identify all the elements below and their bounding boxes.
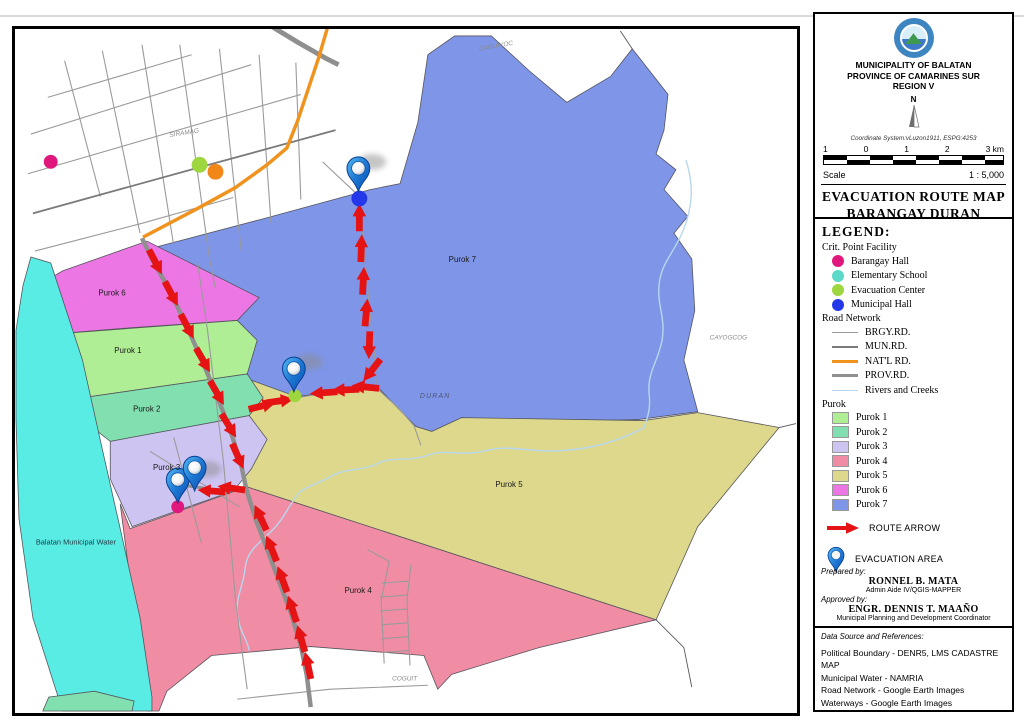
purok6-swatch xyxy=(832,484,849,496)
map-title-line1: EVACUATION ROUTE MAP xyxy=(821,189,1006,206)
evacuation-center-dot xyxy=(192,157,208,173)
credits-block: Prepared by: RONNEL B. MATA Admin Aide I… xyxy=(815,564,1012,628)
road-section-heading: Road Network xyxy=(822,313,1005,324)
approved-by-role: Municipal Planning and Development Coord… xyxy=(821,615,1006,622)
data-source-line: Waterways - Google Earth Images xyxy=(821,697,1006,709)
map-label-purok2: Purok 2 xyxy=(133,405,160,414)
legend-item-label: Purok 1 xyxy=(856,412,887,423)
legend-item-purok3: Purok 3 xyxy=(832,440,1005,453)
legend-item-label: Purok 5 xyxy=(856,470,887,481)
barangay-hall-swatch xyxy=(832,255,844,267)
legend-item-purok5: Purok 5 xyxy=(832,469,1005,482)
scale-tick: 0 xyxy=(864,144,869,154)
legend-item-label: Rivers and Creeks xyxy=(865,385,938,396)
map-label-purok6: Purok 6 xyxy=(98,289,126,298)
legend-item-label: Elementary School xyxy=(851,270,927,281)
data-source-line: Political Boundary - DENR5, LMS CADASTRE… xyxy=(821,647,1006,672)
map-label-duran: DURAN xyxy=(420,393,451,400)
approved-by-name: ENGR. DENNIS T. MAAÑO xyxy=(821,604,1006,615)
legend-heading: LEGEND: xyxy=(822,224,1005,240)
prepared-by-role: Admin Aide IV/QGIS-MAPPER xyxy=(821,587,1006,594)
purok-section-heading: Purok xyxy=(822,399,1005,410)
rivers-swatch xyxy=(832,390,858,391)
legend-item-evacuation-center: Evacuation Center xyxy=(832,284,1005,297)
purok3-swatch xyxy=(832,441,849,453)
evacuation-center-swatch xyxy=(832,284,844,296)
map-layout-panel: MUNICIPALITY OF BALATAN PROVINCE OF CAMA… xyxy=(813,12,1014,712)
data-source-line: Municipal Water - NAMRIA xyxy=(821,672,1006,684)
north-arrow-icon xyxy=(906,104,922,128)
map-title: EVACUATION ROUTE MAP BARANGAY DURAN xyxy=(821,184,1006,223)
map-frame: Purok 6 Purok 1 Purok 2 Purok 3 Purok 7 … xyxy=(12,26,800,716)
legend-item-label: Purok 3 xyxy=(856,441,887,452)
coordinate-system-note: Coordinate System:vLuzon1911, ESPG:4253 xyxy=(821,135,1006,142)
purok5-swatch xyxy=(832,470,849,482)
legend-item-label: Purok 6 xyxy=(856,485,887,496)
legend-item-label: EVACUATION AREA xyxy=(855,554,943,564)
route-arrow-icon xyxy=(826,521,860,535)
legend-item-label: Purok 7 xyxy=(856,499,887,510)
map-label-purok1: Purok 1 xyxy=(114,346,142,355)
scalebar-ticks: 1 0 1 2 3 km xyxy=(823,144,1004,154)
municipal-hall-dot xyxy=(351,191,367,207)
legend-item-barangay-hall: Barangay Hall xyxy=(832,255,1005,268)
province-name: PROVINCE OF CAMARINES SUR xyxy=(821,71,1006,82)
legend-item-purok1: Purok 1 xyxy=(832,411,1005,424)
map-label-purok7: Purok 7 xyxy=(449,255,476,264)
legend-item-label: ROUTE ARROW xyxy=(869,523,940,533)
municipal-seal-logo xyxy=(894,18,934,58)
map-label-purok3: Purok 3 xyxy=(153,463,181,472)
legend-item-elementary-school: Elementary School xyxy=(832,269,1005,282)
north-label: N xyxy=(901,95,927,104)
data-source-line: Road Network - Google Earth Images xyxy=(821,684,1006,696)
title-block: MUNICIPALITY OF BALATAN PROVINCE OF CAMA… xyxy=(815,14,1012,219)
barangay-hall-dot xyxy=(44,155,58,169)
purok1-swatch xyxy=(832,412,849,424)
evacuation-route-map-page: Purok 6 Purok 1 Purok 2 Purok 3 Purok 7 … xyxy=(0,0,1024,724)
brgy-road-swatch xyxy=(832,332,858,333)
orange-facility-dot xyxy=(208,164,224,180)
purok4-swatch xyxy=(832,455,849,467)
legend-item-label: Purok 4 xyxy=(856,456,887,467)
legend-item-route-arrow: ROUTE ARROW xyxy=(826,521,1005,535)
municipality-name: MUNICIPALITY OF BALATAN xyxy=(821,60,1006,71)
purok2-swatch xyxy=(832,426,849,438)
legend-item-purok6: Purok 6 xyxy=(832,484,1005,497)
map-label-coguit: COGUIT xyxy=(392,675,418,682)
prepared-by-name: RONNEL B. MATA xyxy=(821,576,1006,587)
legend-item-label: PROV.RD. xyxy=(865,370,909,381)
legend-item-mun-road: MUN.RD. xyxy=(832,340,1005,353)
legend-item-label: Purok 2 xyxy=(856,427,887,438)
legend-item-label: Barangay Hall xyxy=(851,256,909,267)
approved-by-label: Approved by: xyxy=(821,595,1006,604)
map-canvas: Purok 6 Purok 1 Purok 2 Purok 3 Purok 7 … xyxy=(15,29,797,713)
legend-item-label: MUN.RD. xyxy=(865,341,907,352)
legend-item-label: Evacuation Center xyxy=(851,285,925,296)
legend-item-prov-road: PROV.RD. xyxy=(832,369,1005,382)
legend-block: LEGEND: Crit. Point Facility Barangay Ha… xyxy=(815,219,1012,564)
duran-evac-center-dot xyxy=(288,389,301,402)
facility-section-heading: Crit. Point Facility xyxy=(822,242,1005,253)
data-source-block: Data Source and References: Political Bo… xyxy=(815,628,1012,713)
elementary-school-swatch xyxy=(832,270,844,282)
legend-item-municipal-hall: Municipal Hall xyxy=(832,298,1005,311)
legend-item-label: NAT'L RD. xyxy=(865,356,911,367)
mun-road-swatch xyxy=(832,346,858,348)
purok7-swatch xyxy=(832,499,849,511)
map-label-municipal-water: Balatan Municipal Water xyxy=(36,537,117,546)
natl-road-swatch xyxy=(832,360,858,363)
north-arrow: N xyxy=(901,95,927,133)
prepared-by-label: Prepared by: xyxy=(821,567,1006,576)
legend-item-natl-road: NAT'L RD. xyxy=(832,355,1005,368)
data-source-heading: Data Source and References: xyxy=(821,632,1006,641)
legend-item-purok7: Purok 7 xyxy=(832,498,1005,511)
legend-item-label: BRGY.RD. xyxy=(865,327,910,338)
legend-item-purok2: Purok 2 xyxy=(832,426,1005,439)
map-label-cayogcog: CAYOGCOG xyxy=(710,334,747,341)
scale-label: Scale xyxy=(823,170,846,180)
map-label-purok5: Purok 5 xyxy=(495,480,523,489)
map-label-purok4: Purok 4 xyxy=(344,586,372,595)
scale-tick: 1 xyxy=(823,144,828,154)
legend-item-brgy-road: BRGY.RD. xyxy=(832,326,1005,339)
scale-tick: 1 xyxy=(904,144,909,154)
scale-tick: 3 km xyxy=(986,144,1004,154)
scale-ratio: 1 : 5,000 xyxy=(969,170,1004,180)
prov-road-swatch xyxy=(832,374,858,377)
legend-item-purok4: Purok 4 xyxy=(832,455,1005,468)
legend-item-rivers: Rivers and Creeks xyxy=(832,384,1005,397)
municipal-hall-swatch xyxy=(832,299,844,311)
legend-item-label: Municipal Hall xyxy=(851,299,912,310)
scalebar xyxy=(823,155,1004,165)
scale-tick: 2 xyxy=(945,144,950,154)
region-name: REGION V xyxy=(821,81,1006,92)
